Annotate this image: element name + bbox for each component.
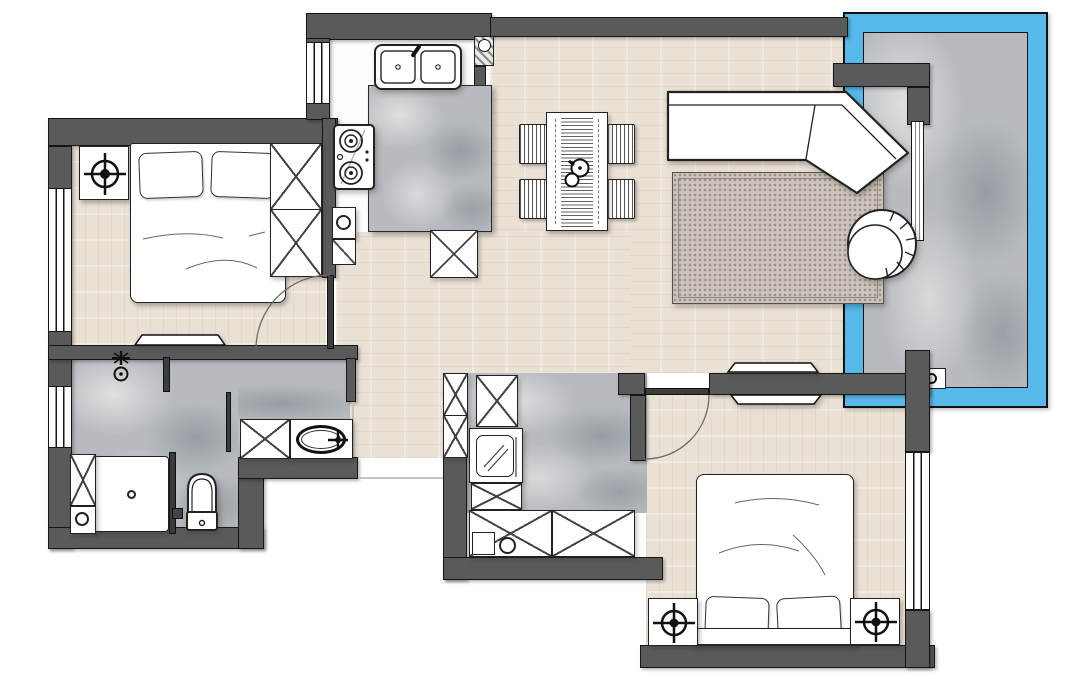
- service-column: [474, 36, 494, 66]
- ceiling-light-icon: [851, 599, 901, 646]
- bedroom1-wardrobe-bottom: [270, 209, 322, 277]
- kitchen-base-cabinet: [332, 207, 356, 239]
- placemat-line-left: [555, 119, 556, 224]
- living-top-wall: [490, 17, 848, 37]
- bedroom2-tv: [730, 394, 822, 405]
- dining-chair-1: [519, 124, 547, 164]
- basket-icon: [75, 512, 89, 526]
- vanity-cabinet: [240, 419, 290, 459]
- floor-plan: [0, 0, 1080, 679]
- vanity-counter: [290, 419, 353, 459]
- washer-glass-lines: [470, 429, 524, 484]
- bedroom2-right-wall-upper: [905, 350, 930, 452]
- bedroom2-door-swing: [642, 392, 714, 464]
- corner-sofa: [660, 85, 920, 200]
- laundry-basket-cabinet: [70, 506, 96, 534]
- bed-linen-folds: [697, 475, 855, 647]
- living-bottom-wall-right: [709, 373, 930, 395]
- bedroom1-tv: [134, 334, 226, 346]
- ceiling-light-icon: [649, 599, 699, 647]
- bathroom-door-jamb-wall: [346, 358, 356, 402]
- bedroom2-bed: [696, 474, 854, 646]
- utility-upper-cabinet: [476, 375, 518, 427]
- bedroom1-wardrobe-top: [270, 143, 322, 210]
- utility-sink-basin: [499, 537, 516, 554]
- dining-chair-2: [519, 179, 547, 219]
- balcony-wall-return-h: [833, 63, 930, 87]
- shower-screen-b: [226, 392, 231, 452]
- shower-head-icon: [106, 350, 136, 384]
- placemat-line-right: [598, 119, 599, 224]
- shower-tray: [93, 456, 169, 532]
- bedroom1-window: [48, 188, 72, 332]
- kitchen-double-sink: [374, 44, 462, 90]
- kitchen-counter: [368, 85, 492, 232]
- bathroom-window: [48, 386, 72, 448]
- utility-bottom-wall: [443, 557, 663, 580]
- toilet: [183, 470, 221, 534]
- dining-chair-4: [607, 179, 635, 219]
- living-bottom-wall-left: [618, 373, 645, 395]
- entry-threshold: [358, 477, 443, 479]
- vanity-back-wall: [238, 457, 358, 479]
- dining-table: [546, 112, 608, 231]
- shower-screen-a: [163, 357, 170, 392]
- living-tv: [727, 362, 819, 373]
- shower-screen-c: [169, 452, 176, 534]
- bedroom2-right-wall-lower: [905, 610, 930, 668]
- counter-end-cabinet: [430, 230, 478, 278]
- bedroom1-nightstand: [79, 146, 129, 200]
- shower-drain-icon: [127, 490, 136, 499]
- bedroom2-bottom-wall: [640, 645, 935, 668]
- pipe-riser-icon: [478, 39, 491, 52]
- bedroom2-nightstand-right: [850, 598, 900, 645]
- bedroom1-top-wall: [48, 118, 338, 146]
- bedroom1-door-swing: [250, 268, 336, 356]
- utility-tall-cabinet-top: [443, 373, 468, 416]
- utility-counter-right: [552, 510, 635, 557]
- bedroom2-window: [905, 452, 930, 610]
- washing-machine: [469, 428, 523, 483]
- ceiling-light-icon: [80, 147, 130, 201]
- faucet-icon: [327, 429, 349, 451]
- bathroom-floor-drain: [172, 508, 183, 519]
- utility-tall-cabinet-bottom: [443, 415, 468, 458]
- kitchen-appliance-cabinet: [332, 239, 356, 265]
- dining-chair-3: [607, 124, 635, 164]
- utility-drawer-cabinet: [471, 483, 522, 510]
- utility-small-sink: [472, 532, 495, 555]
- kitchen-gas-stove: [333, 124, 375, 190]
- bedroom2-headboard: [692, 628, 858, 645]
- bedroom2-nightstand-left: [648, 598, 698, 646]
- kitchen-window: [306, 42, 330, 104]
- bathroom-storage-cabinet: [70, 454, 96, 506]
- basin-icon: [336, 215, 351, 230]
- round-lounge-chair: [840, 202, 920, 296]
- teapot-icon: [563, 157, 591, 189]
- kitchen-top-wall: [306, 13, 492, 40]
